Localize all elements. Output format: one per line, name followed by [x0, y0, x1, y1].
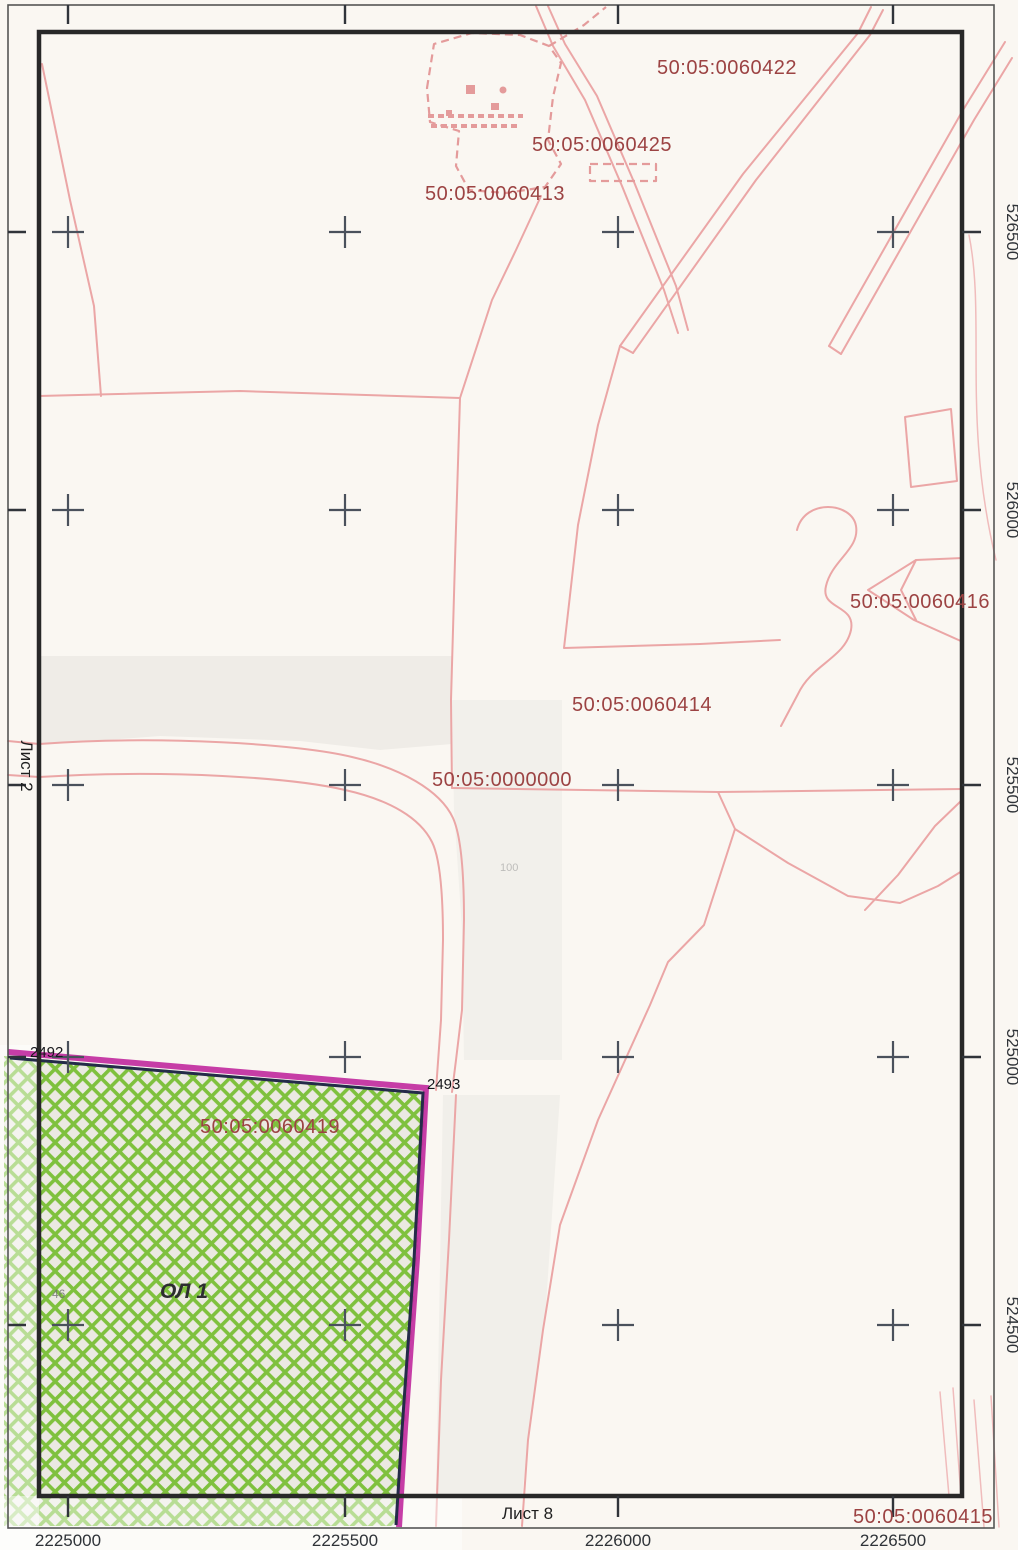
grid-x-label: 2226000 — [585, 1531, 651, 1550]
grid-cross — [329, 216, 361, 248]
grid-cross — [602, 494, 634, 526]
grid-cross — [602, 216, 634, 248]
grid-cross — [877, 769, 909, 801]
grid-x-label: 2225000 — [35, 1531, 101, 1550]
boundary-point-label: 2492 — [30, 1044, 63, 1061]
quarter-label: 50:05:0000000 — [432, 769, 572, 791]
settlement-boundary — [427, 7, 656, 193]
grid-y-label: 525500 — [1003, 757, 1018, 814]
sheet-bottom-label: Лист 8 — [502, 1504, 553, 1523]
quarter-label: 50:05:0060414 — [572, 694, 712, 716]
grid-y-label: 526500 — [1003, 204, 1018, 261]
road-edge-upper — [8, 740, 464, 1092]
sheet-left-label: Лист 2 — [17, 740, 36, 791]
quarter-label: 50:05:0060416 — [850, 591, 990, 613]
quarter-label: 50:05:0060425 — [532, 134, 672, 156]
grid-cross — [329, 494, 361, 526]
grid-cross — [877, 1041, 909, 1073]
grid-y-label: 524500 — [1003, 1297, 1018, 1354]
grid-y-label: 526000 — [1003, 482, 1018, 539]
boundary-point-label: 2493 — [427, 1076, 460, 1093]
road-mark-label: 100 — [500, 862, 518, 874]
grid-cross — [602, 1309, 634, 1341]
grid-x-label: 2225500 — [312, 1531, 378, 1550]
map-canvas: 2225000222550022260002226500526500526000… — [0, 0, 1018, 1550]
parcel-name-label: ОЛ 1 — [160, 1280, 208, 1303]
grid-cross — [329, 1041, 361, 1073]
quarter-label: 50:05:0060413 — [425, 183, 565, 205]
grid-x-label: 2226500 — [860, 1531, 926, 1550]
cadastral-map-sheet: 2225000222550022260002226500526500526000… — [0, 0, 1018, 1550]
grid-cross — [329, 769, 361, 801]
house-number-label: 46 — [52, 1287, 66, 1301]
grid-cross — [52, 494, 84, 526]
grid-cross — [602, 1041, 634, 1073]
grid-cross — [52, 769, 84, 801]
quarter-label: 50:05:0060422 — [657, 57, 797, 79]
grid-cross — [877, 494, 909, 526]
grid-cross — [602, 769, 634, 801]
grid-cross — [877, 1309, 909, 1341]
quarter-label: 50:05:0060419 — [200, 1116, 340, 1138]
road-edge-lower — [8, 774, 443, 1090]
building-marks — [446, 85, 507, 116]
corner-quarter-label: 50:05:0060415 — [853, 1506, 993, 1528]
grid-y-label: 525000 — [1003, 1029, 1018, 1086]
cadastral-quarter-labels: 50:05:006042250:05:006042550:05:00604135… — [200, 57, 990, 1138]
